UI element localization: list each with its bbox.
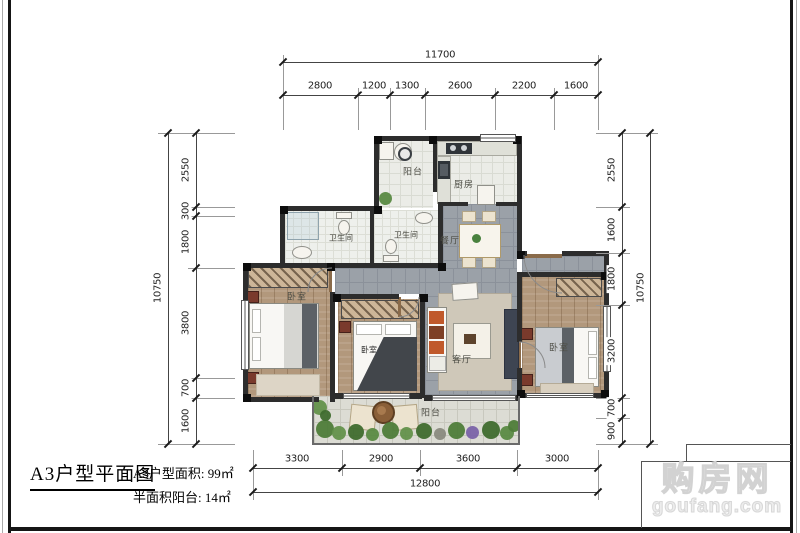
dim-left-seg-5: 1600 — [181, 407, 192, 435]
room-label-balcony-bottom: 阳台 — [421, 406, 441, 419]
plan-area-balcony: 半面积阳台: 14㎡ — [133, 487, 231, 506]
room-label-kitchen: 厨房 — [454, 178, 474, 191]
dim-right-seg-5: 900 — [607, 420, 618, 442]
dim-bottom-seg-3: 3000 — [543, 454, 571, 465]
dim-left-total: 10750 — [153, 271, 164, 305]
plan-area-total: A3户型面积: 99㎡ — [133, 463, 234, 482]
room-label-bath-right: 卫生间 — [394, 230, 418, 241]
drawing-sheet: 阳台 厨房 卫生间 卫生间 餐厅 卧室 卧室 客厅 卧室 阳台 11700 28… — [0, 0, 800, 533]
room-label-bedroom-right: 卧室 — [549, 341, 569, 354]
dim-right-total: 10750 — [636, 271, 647, 305]
frame-left — [8, 0, 11, 533]
dim-left-seg-0: 2550 — [181, 156, 192, 184]
room-label-balcony-top: 阳台 — [403, 165, 423, 178]
bedroom-mid-door-arc — [399, 297, 419, 317]
dim-left-seg-1: 300 — [181, 200, 192, 222]
dim-top-seg-0: 2800 — [306, 81, 334, 92]
frame-right — [790, 0, 793, 533]
titleblock-divider-v1 — [641, 461, 642, 528]
room-label-bath-left: 卫生间 — [329, 233, 353, 244]
dim-right-seg-2: 1800 — [607, 265, 618, 293]
bedroom-left-door-arc — [308, 268, 332, 292]
room-label-bedroom-left: 卧室 — [287, 290, 307, 303]
titleblock-divider-v2 — [686, 444, 687, 461]
dim-right-seg-4: 700 — [607, 397, 618, 419]
dim-bottom-seg-2: 3600 — [454, 454, 482, 465]
entry-door-arc — [524, 255, 562, 293]
watermark-brand: 购房网 — [644, 462, 790, 497]
dim-bottom-total: 12800 — [408, 479, 442, 490]
dim-bottom-seg-0: 3300 — [283, 454, 311, 465]
dim-bottom-seg-1: 2900 — [367, 454, 395, 465]
dim-top-seg-4: 2200 — [510, 81, 538, 92]
dim-right-seg-0: 2550 — [607, 156, 618, 184]
bedroom-right-door-arc — [519, 342, 545, 368]
frame-left-thin — [2, 0, 3, 533]
titleblock-divider-h2 — [686, 444, 791, 445]
watermark: 购房网 goufang.com — [644, 462, 790, 517]
dim-right-seg-3: 3200 — [607, 337, 618, 365]
dim-top-seg-5: 1600 — [562, 81, 590, 92]
dim-top-seg-3: 2600 — [446, 81, 474, 92]
room-label-bedroom-mid: 卧室 — [361, 345, 377, 356]
frame-right-thin — [796, 0, 797, 533]
watermark-domain: goufang.com — [644, 497, 790, 517]
room-label-living: 客厅 — [452, 353, 472, 366]
dim-left-seg-4: 700 — [181, 377, 192, 399]
dim-left-seg-3: 3800 — [181, 309, 192, 337]
dim-right-seg-1: 1600 — [607, 216, 618, 244]
dim-top-seg-2: 1300 — [393, 81, 421, 92]
dim-top-seg-1: 1200 — [360, 81, 388, 92]
dim-left-seg-2: 1800 — [181, 228, 192, 256]
room-label-dining: 餐厅 — [440, 234, 460, 247]
dim-top-total: 11700 — [423, 50, 457, 61]
frame-bottom — [8, 527, 793, 531]
